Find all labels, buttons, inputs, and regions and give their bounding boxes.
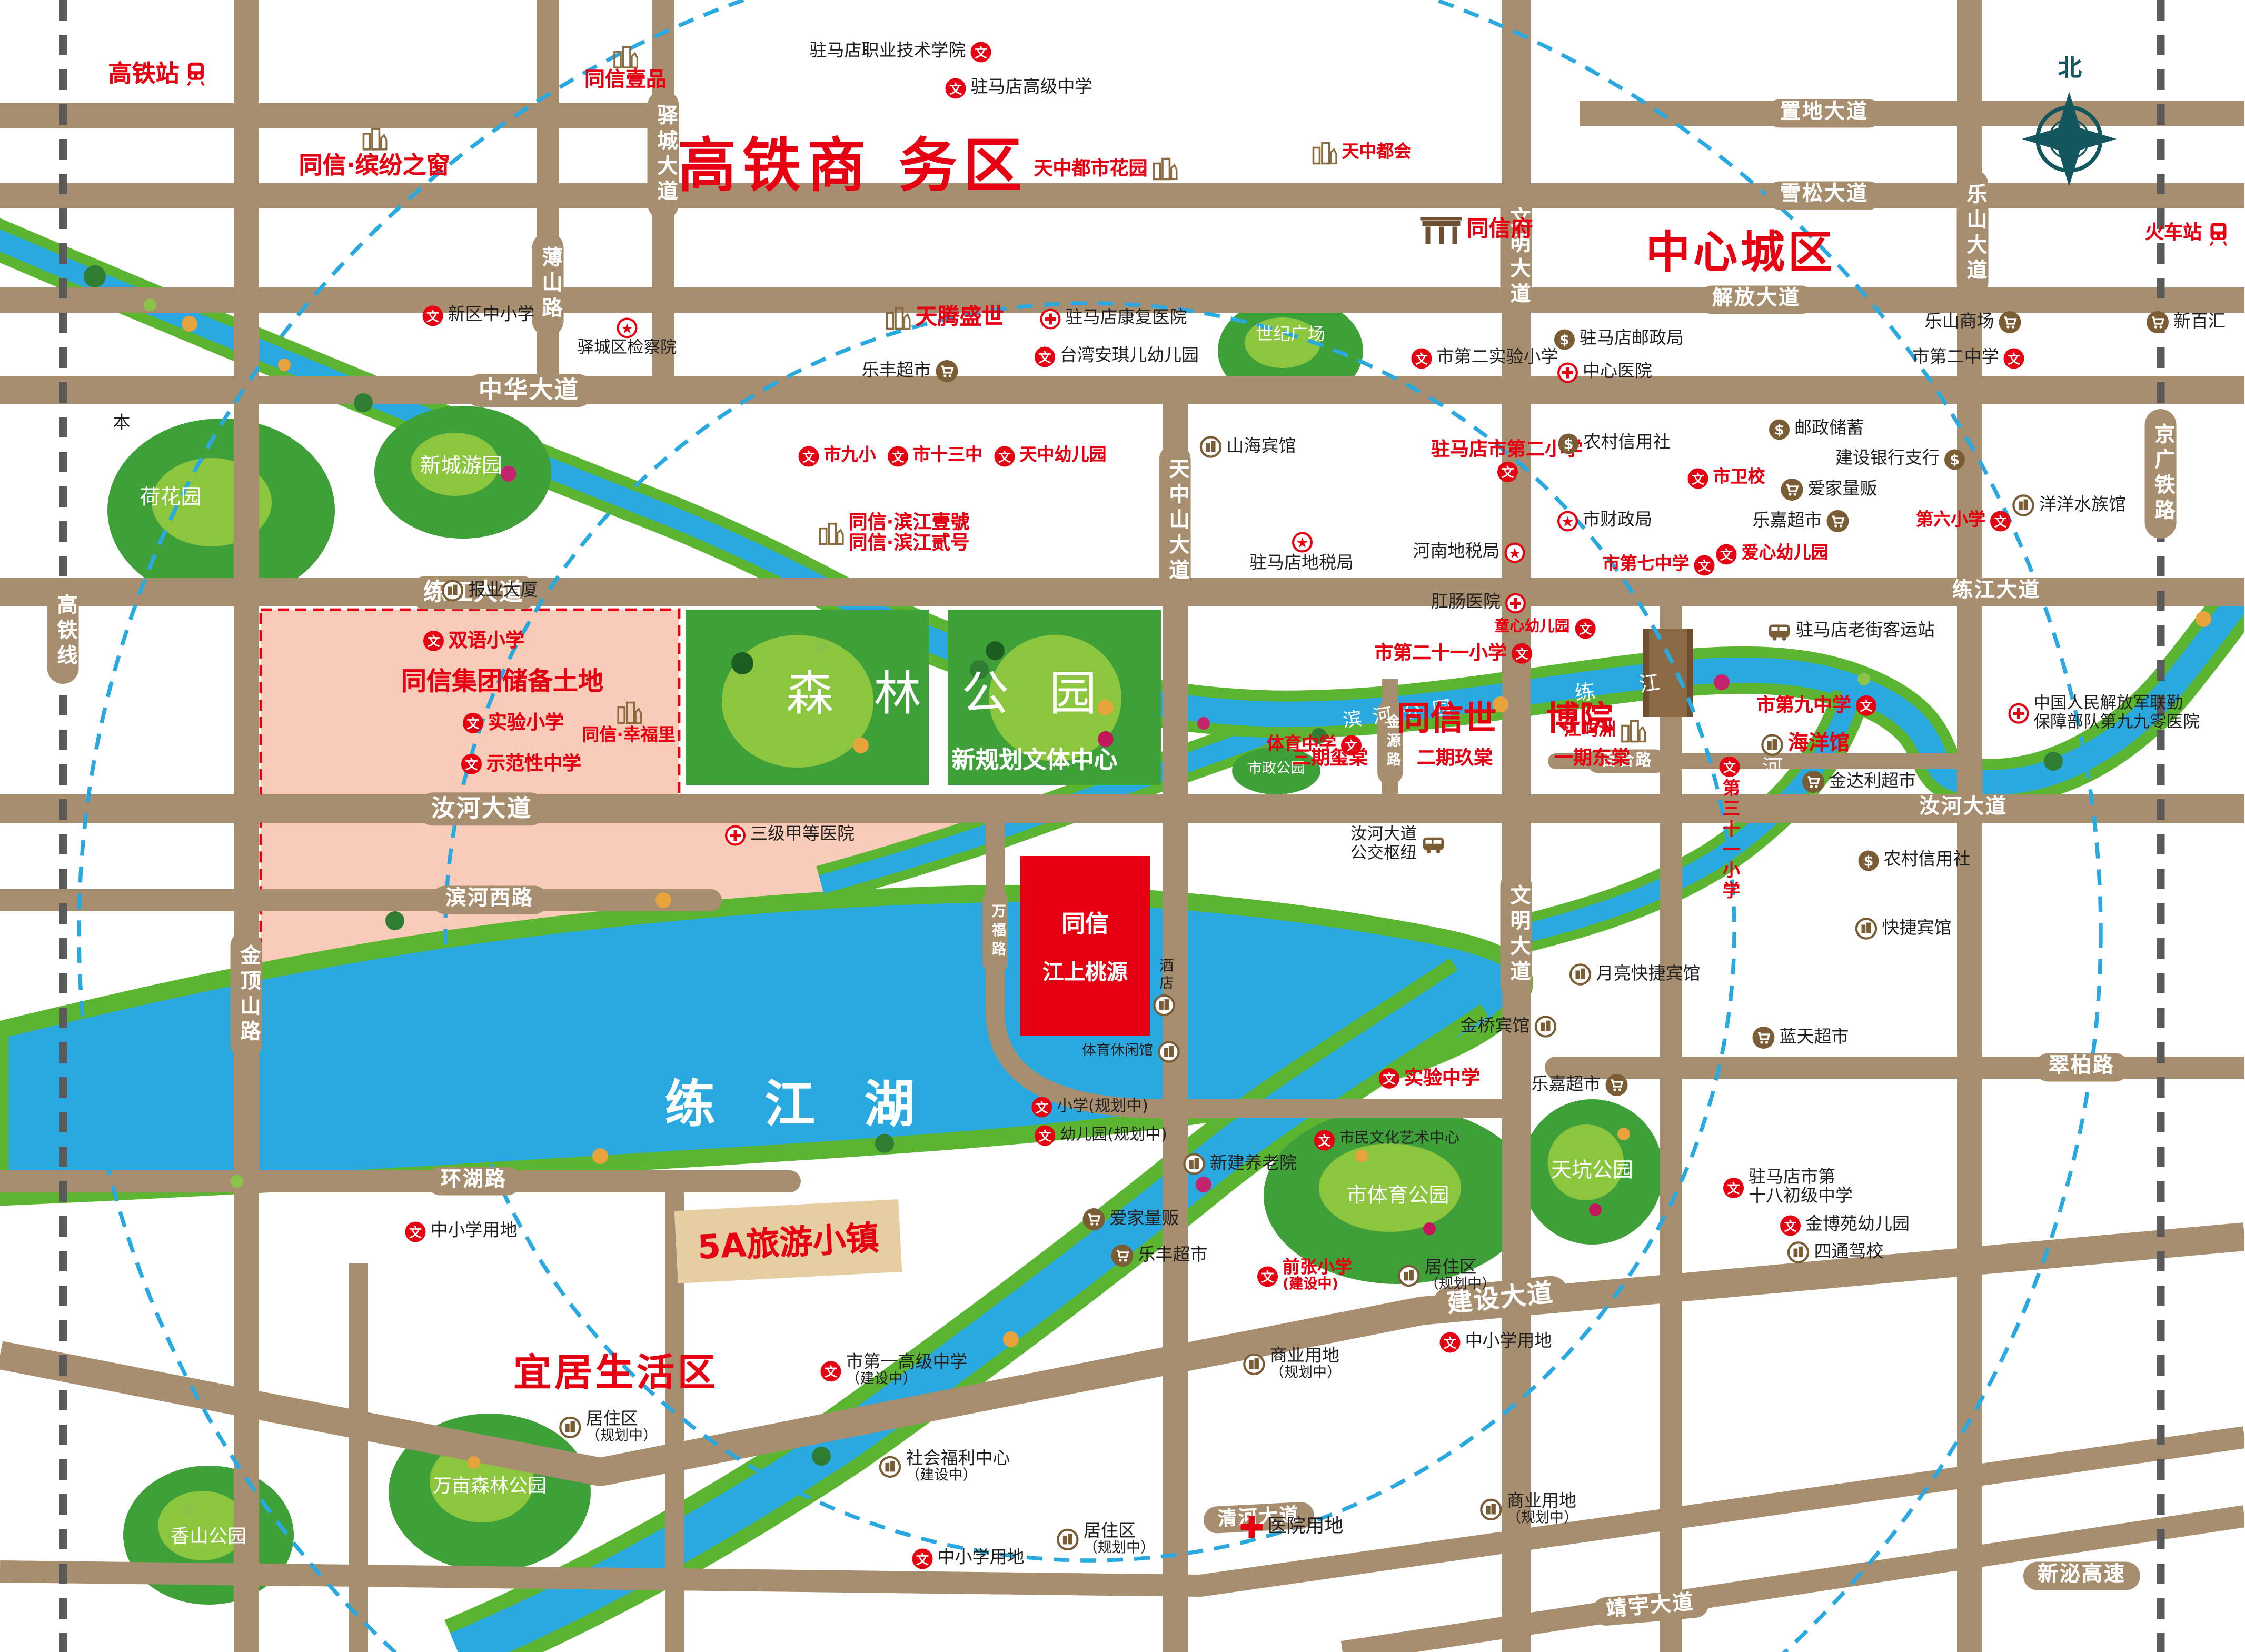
svg-text:文: 文	[426, 309, 440, 324]
hospital-icon	[1040, 309, 1061, 330]
svg-text:$: $	[1559, 332, 1569, 348]
poi-label: 天腾盛世	[916, 306, 1004, 331]
area-text: 新规划文体中心	[951, 749, 1117, 773]
bank-icon: $	[1769, 420, 1790, 440]
poi-label: 市民文化艺术中心	[1339, 1132, 1459, 1149]
poi-label: 天中幼儿园	[1020, 447, 1107, 466]
poi-label: 金桥宾馆	[1461, 1017, 1530, 1037]
poi-label: 前张小学(建设中)	[1283, 1258, 1352, 1293]
supermarket-icon	[1753, 1027, 1775, 1049]
poi: 市第九中学文	[1756, 695, 1876, 716]
poi: $驻马店邮政局	[1554, 330, 1684, 350]
poi: 乐山商场	[1925, 311, 2021, 333]
school-icon: 文	[1990, 511, 2011, 532]
area-text: 本	[113, 414, 131, 433]
tourism-town-label: 5A旅游小镇	[697, 1213, 880, 1270]
road-label: 金顶山路	[231, 930, 263, 1060]
poi: $农村信用社	[1558, 434, 1671, 454]
svg-text:文: 文	[802, 450, 816, 464]
poi: 体育休闲馆	[1082, 1041, 1180, 1063]
school-icon: 文	[1035, 1126, 1055, 1146]
poi-label: 幼儿园(规划中)	[1060, 1127, 1167, 1145]
poi-label: 双语小学	[449, 631, 524, 652]
poi-label: 天中都会	[1342, 144, 1412, 163]
hospital-icon	[1557, 363, 1578, 383]
tourism-town-block: 5A旅游小镇	[674, 1199, 902, 1283]
project-block-jiangshangtaoyuan: 同信 江上桃源	[1020, 856, 1150, 1036]
poi: 乐丰超市	[862, 360, 958, 382]
school-icon: 文	[1314, 1130, 1335, 1151]
poi: 文天中幼儿园	[995, 446, 1107, 467]
svg-text:文: 文	[1578, 622, 1592, 636]
supermarket-icon	[1802, 771, 1824, 793]
school-icon: 文	[888, 446, 908, 467]
poi-label: 农村信用社	[1884, 851, 1971, 871]
development-skyline-icon	[1621, 720, 1646, 743]
building-icon	[1057, 1529, 1079, 1551]
poi-label: 社会福利中心（建设中）	[906, 1449, 1010, 1485]
poi-label: 乐山商场	[1925, 313, 1994, 332]
svg-text:文: 文	[1784, 1219, 1797, 1233]
school-icon: 文	[912, 1549, 933, 1569]
poi-label: 驻马店职业技术学院	[810, 43, 966, 62]
poi: 文示范性中学	[461, 754, 581, 775]
poi: 中心医院	[1557, 363, 1652, 383]
svg-text:★: ★	[1561, 514, 1574, 530]
poi: $邮政储蓄	[1769, 420, 1864, 440]
school-icon: 文	[423, 631, 444, 652]
poi-label: 市第七中学	[1603, 556, 1690, 575]
bank-icon: $	[1558, 434, 1579, 454]
supermarket-icon	[1111, 1245, 1134, 1267]
bank-icon: $	[1944, 450, 1965, 470]
building-icon	[1787, 1241, 1810, 1263]
development-skyline-icon	[819, 522, 844, 546]
building-icon	[442, 580, 464, 602]
school-icon: 文	[971, 42, 991, 63]
svg-text:文: 文	[1036, 1100, 1049, 1115]
svg-text:文: 文	[466, 716, 480, 731]
building-icon	[1158, 1041, 1180, 1063]
school-icon: 文	[1440, 1332, 1461, 1353]
svg-text:文: 文	[427, 634, 440, 649]
poi: 同信·幸福里	[582, 701, 676, 746]
svg-text:文: 文	[409, 1225, 422, 1240]
school-icon: 文	[1257, 1266, 1278, 1287]
poi: 天中都会	[1312, 142, 1412, 165]
poi: 乐丰超市	[1111, 1245, 1208, 1267]
building-icon	[1243, 1354, 1265, 1376]
svg-text:文: 文	[1692, 472, 1705, 486]
supermarket-icon	[1827, 510, 1849, 532]
poi-label: 报业大厦	[469, 581, 538, 601]
poi-label: 中国人民解放军联勤保障部队第九九零医院	[2034, 695, 2200, 733]
poi-label: 邮政储蓄	[1794, 420, 1864, 440]
poi-label: 医院用地	[1267, 1517, 1343, 1538]
development-skyline-icon	[362, 127, 387, 151]
building-icon	[1480, 1499, 1502, 1521]
poi: 文前张小学(建设中)	[1257, 1258, 1352, 1293]
poi: 乐嘉超市	[1753, 510, 1849, 532]
poi-label: 爱家量贩	[1808, 480, 1878, 500]
svg-text:文: 文	[998, 450, 1011, 464]
poi-label: 中小学用地	[938, 1549, 1025, 1569]
school-icon: 文	[423, 306, 443, 326]
poi-label: 居住区（规划中）	[586, 1410, 657, 1445]
area-text: 高铁商 务区	[678, 137, 1028, 198]
svg-text:文: 文	[949, 82, 962, 96]
poi-label: 金达利超市	[1829, 772, 1916, 792]
building-icon	[879, 1456, 901, 1478]
poi-label: 新建养老院	[1210, 1155, 1297, 1174]
poi-label: 体育休闲馆	[1082, 1044, 1153, 1060]
poi: 四通驾校	[1787, 1241, 1884, 1263]
poi-label: 新区中小学	[448, 306, 535, 326]
development-skyline-icon	[1153, 157, 1178, 181]
poi: 居住区（规划中）	[1398, 1258, 1496, 1293]
poi-label: 示范性中学	[486, 754, 581, 775]
svg-text:文: 文	[1039, 1129, 1052, 1143]
building-icon	[2012, 494, 2034, 516]
school-icon: 文	[461, 754, 482, 775]
poi: 文市民文化艺术中心	[1314, 1130, 1459, 1151]
school-icon: 文	[1723, 1178, 1744, 1198]
hospital-icon	[2009, 704, 2029, 724]
school-icon: 文	[1031, 1097, 1052, 1118]
svg-text:★: ★	[1508, 545, 1521, 562]
bus-station-icon	[1767, 622, 1791, 642]
svg-text:文: 文	[1720, 548, 1733, 562]
bus-station-icon	[1422, 835, 1445, 855]
road-label: 解放大道	[1698, 286, 1815, 315]
poi-label: 商业用地（规划中）	[1270, 1347, 1341, 1382]
poi: 商业用地（规划中）	[1243, 1347, 1341, 1382]
development-skyline-icon	[886, 307, 911, 331]
poi: 驻马店职业技术学院文	[810, 42, 991, 63]
poi: 文中小学用地	[912, 1549, 1025, 1569]
school-icon: 文	[463, 713, 483, 734]
area-text: 同信集团储备土地	[401, 669, 603, 695]
poi: 文台湾安琪儿幼儿园	[1035, 347, 1199, 367]
poi-label: 同信府	[1467, 218, 1533, 243]
poi: 同信·滨江壹號同信·滨江贰号	[819, 513, 970, 555]
poi: 文市十三中	[888, 446, 982, 467]
svg-text:★: ★	[1295, 535, 1308, 551]
poi: 新百汇	[2147, 311, 2226, 333]
poi-label: 驿城区检察院	[578, 340, 677, 358]
poi-label: 驻马店市第十八初级中学	[1749, 1168, 1853, 1207]
road-label: 薄山路	[532, 232, 564, 336]
poi: 商业用地（规划中）	[1480, 1492, 1578, 1527]
poi: 金桥宾馆	[1461, 1016, 1557, 1038]
poi-label: 河南地税局	[1413, 543, 1500, 563]
poi: 河南地税局★	[1413, 543, 1525, 563]
area-text: 一期东棠	[1554, 748, 1630, 768]
poi: 文爱心幼儿园	[1716, 544, 1829, 565]
poi: 洋洋水族馆	[2012, 494, 2126, 516]
poi-label: 市第二十一小学	[1374, 643, 1507, 664]
building-icon	[1153, 994, 1175, 1017]
poi: 山海宾馆	[1200, 436, 1296, 458]
poi-label: 海洋馆	[1788, 734, 1850, 757]
poi-label: 酒店	[1156, 958, 1172, 993]
poi-label: 居住区（规划中）	[1084, 1522, 1155, 1557]
poi-label: 实验中学	[1404, 1068, 1480, 1089]
poi: 文市卫校	[1688, 469, 1765, 489]
building-icon	[559, 1417, 581, 1439]
poi: 市第二中学文	[1912, 349, 2024, 369]
poi: 市第七中学文	[1603, 555, 1715, 576]
school-icon: 文	[1574, 619, 1595, 639]
poi: 文实验中学	[1379, 1068, 1480, 1089]
project-name-line1: 同信	[1061, 907, 1109, 940]
poi-label: 童心幼儿园	[1495, 620, 1570, 637]
area-text: 新城游园	[420, 457, 502, 479]
poi-label: 乐嘉超市	[1532, 1076, 1601, 1095]
svg-text:文: 文	[916, 1552, 929, 1567]
bank-icon: $	[1554, 330, 1575, 350]
poi-label: 市卫校	[1713, 469, 1765, 489]
area-text: 森 林 公 园	[786, 670, 1109, 720]
rail-station-icon	[2207, 221, 2230, 246]
road-label: 新泌高速	[2023, 1562, 2140, 1591]
poi-label: 小学(规划中)	[1057, 1098, 1148, 1116]
poi-label: 驻马店高级中学	[971, 79, 1092, 98]
poi: 文金博苑幼儿园	[1780, 1216, 1910, 1236]
school-icon: 文	[1720, 757, 1740, 777]
poi: 社会福利中心（建设中）	[879, 1449, 1010, 1485]
svg-text:$: $	[1864, 853, 1874, 869]
supermarket-icon	[1083, 1208, 1105, 1230]
development-skyline-icon	[1312, 142, 1337, 165]
poi-label: 山海宾馆	[1227, 437, 1296, 457]
svg-text:文: 文	[892, 450, 905, 464]
building-icon	[1855, 918, 1878, 940]
road-label: 京广铁路	[2145, 409, 2177, 539]
svg-text:文: 文	[1723, 760, 1736, 775]
building-icon	[1183, 1153, 1205, 1175]
compass-north-label: 北	[2058, 57, 2082, 82]
map-canvas: 同信 江上桃源 5A旅游小镇 北 置地大道雪松大道解放大道中华大道练江大道练江大…	[0, 0, 2244, 1652]
svg-text:文: 文	[1860, 699, 1873, 714]
poi: ★驿城区检察院	[578, 317, 677, 358]
poi-label: 汝河大道公交枢纽	[1350, 827, 1417, 864]
area-text: 河	[1762, 759, 1782, 780]
poi-label: 居住区（规划中）	[1425, 1258, 1496, 1293]
road-label: 高铁线	[47, 580, 80, 684]
poi: 文幼儿园(规划中)	[1035, 1126, 1167, 1146]
poi-label: 乐丰超市	[1138, 1246, 1208, 1266]
road-label: 环湖路	[426, 1167, 521, 1196]
poi-label: 爱家量贩	[1110, 1210, 1179, 1229]
poi: 天腾盛世	[886, 306, 1004, 331]
government-star-icon: ★	[1292, 532, 1312, 553]
svg-text:文: 文	[1039, 350, 1052, 365]
area-text: 市体育公园	[1346, 1187, 1449, 1208]
poi: 文中小学用地	[405, 1222, 518, 1242]
svg-text:文: 文	[2008, 352, 2021, 366]
poi-label: 农村信用社	[1584, 434, 1671, 454]
poi-label: 同信·缤纷之窗	[299, 153, 450, 179]
poi: ★驻马店地税局	[1249, 532, 1354, 574]
school-icon: 文	[2004, 349, 2024, 369]
poi: 文双语小学	[423, 631, 524, 652]
area-text: 万亩森林公园	[433, 1476, 547, 1496]
bank-icon: $	[1859, 851, 1879, 871]
poi: 文第三十一小学	[1720, 757, 1740, 902]
poi: 建设银行支行$	[1835, 450, 1965, 470]
svg-text:文: 文	[1383, 1072, 1396, 1087]
road-label: 汝河大道	[1905, 794, 2022, 823]
poi: 同信府	[1421, 217, 1533, 244]
school-icon: 文	[821, 1361, 841, 1381]
poi-label: 市第一高级中学（建设中）	[846, 1353, 968, 1388]
school-icon: 文	[1780, 1216, 1801, 1236]
svg-text:文: 文	[825, 1364, 838, 1379]
svg-text:$: $	[1774, 422, 1784, 438]
poi-label: 市第九中学	[1756, 695, 1851, 716]
svg-text:文: 文	[1444, 1336, 1457, 1350]
area-text: 宜居生活区	[513, 1354, 719, 1394]
poi: 爱家量贩	[1781, 479, 1878, 501]
poi-label: 驻马店康复医院	[1066, 310, 1187, 329]
poi: 天中都市花园	[1034, 157, 1177, 181]
area-text: 天坑公园	[1551, 1161, 1633, 1183]
poi: 乐嘉超市	[1532, 1074, 1628, 1096]
supermarket-icon	[936, 360, 958, 382]
road-label: 置地大道	[1766, 99, 1883, 128]
government-star-icon: ★	[1505, 543, 1525, 563]
supermarket-icon	[2147, 311, 2169, 333]
poi: 同信壹品	[584, 45, 667, 94]
poi: 居住区（规划中）	[559, 1410, 657, 1445]
school-icon: 文	[405, 1222, 426, 1242]
svg-text:文: 文	[1698, 559, 1711, 573]
government-star-icon: ★	[1557, 511, 1578, 532]
poi-label: 同信·幸福里	[582, 727, 676, 746]
poi-label: 第三十一小学	[1720, 779, 1740, 902]
poi: 同信·缤纷之窗	[299, 127, 450, 179]
school-icon: 文	[995, 446, 1015, 467]
poi-label: 新百汇	[2173, 313, 2226, 332]
poi: 蓝天超市	[1753, 1027, 1849, 1049]
poi-label: 商业用地（规划中）	[1507, 1492, 1578, 1527]
svg-text:$: $	[1564, 436, 1574, 452]
svg-text:文: 文	[1261, 1269, 1275, 1284]
poi-label: 同信壹品	[584, 71, 667, 94]
poi: 市第二十一小学文	[1374, 643, 1532, 664]
road-label: 万福路	[982, 889, 1008, 974]
poi: 居住区（规划中）	[1057, 1522, 1155, 1557]
svg-text:文: 文	[465, 758, 478, 772]
poi-label: 同信·滨江壹號同信·滨江贰号	[849, 513, 970, 555]
poi: 爱家量贩	[1083, 1208, 1179, 1230]
area-text: 同信世	[1397, 701, 1497, 736]
poi-label: 市十三中	[913, 447, 982, 466]
building-icon	[1761, 734, 1783, 757]
poi-label: 爱心幼儿园	[1742, 545, 1829, 564]
poi-label: 市财政局	[1583, 512, 1652, 531]
poi: 文驻马店市第十八初级中学	[1723, 1168, 1853, 1207]
area-text: 中心城区	[1646, 230, 1835, 276]
poi-label: 实验小学	[488, 713, 564, 734]
road-label: 乐山大道	[1957, 169, 1989, 298]
development-skyline-icon	[616, 701, 641, 725]
poi-label: 月亮快捷宾馆	[1596, 965, 1701, 984]
svg-text:$: $	[1950, 452, 1960, 468]
poi-label: 台湾安琪儿幼儿园	[1060, 347, 1199, 367]
poi-label: 蓝天超市	[1780, 1028, 1849, 1048]
school-icon: 文	[1688, 469, 1708, 489]
poi: 火车站	[2145, 221, 2230, 246]
poi: 文市第一高级中学（建设中）	[821, 1353, 968, 1388]
poi-label: 驻马店邮政局	[1580, 330, 1684, 350]
building-icon	[1200, 436, 1222, 458]
poi: 第六小学文	[1916, 511, 2011, 532]
poi-label: 驻马店地税局	[1249, 554, 1354, 574]
building-icon	[1569, 963, 1592, 986]
school-icon: 文	[1412, 349, 1432, 369]
poi-label: 中小学用地	[431, 1222, 518, 1242]
poi: 三级甲等医院	[725, 825, 855, 846]
poi-label: 中心医院	[1583, 363, 1652, 383]
road-label: 文明大道	[1501, 870, 1533, 1000]
supermarket-icon	[1999, 311, 2021, 333]
road-label: 雪松大道	[1766, 182, 1883, 211]
area-text: 练 江 湖	[665, 1079, 931, 1132]
poi: 驻马店康复医院	[1040, 309, 1187, 330]
poi: 驻马店老街客运站	[1767, 622, 1935, 642]
svg-text:文: 文	[1318, 1133, 1331, 1148]
poi: 文驻马店高级中学	[946, 78, 1092, 99]
svg-text:文: 文	[1994, 514, 2008, 529]
svg-text:文: 文	[1727, 1181, 1741, 1196]
road-label: 中华大道	[464, 374, 594, 406]
poi-label: 快捷宾馆	[1882, 919, 1952, 939]
svg-text:★: ★	[621, 321, 633, 337]
poi: 酒店	[1153, 958, 1175, 1017]
poi: 童心幼儿园文	[1495, 619, 1595, 639]
poi-label: 驻马店老街客运站	[1796, 622, 1935, 642]
development-skyline-icon	[613, 45, 638, 69]
area-text: 三期玺棠	[1292, 748, 1368, 768]
road-label: 天中山大道	[1159, 444, 1191, 599]
school-icon: 文	[1379, 1069, 1399, 1089]
school-icon: 文	[1694, 555, 1715, 576]
hospital-icon	[725, 825, 746, 846]
gate-archway-icon	[1421, 217, 1462, 244]
area-text: 荷花园	[140, 489, 201, 510]
building-icon	[1535, 1016, 1557, 1038]
poi: 海洋馆	[1761, 734, 1850, 757]
poi-label: 四通驾校	[1814, 1243, 1884, 1262]
map-labels-layer: 同信 江上桃源 5A旅游小镇 北 置地大道雪松大道解放大道中华大道练江大道练江大…	[0, 0, 2244, 1652]
poi: 文新区中小学	[423, 306, 535, 326]
poi-label: 建设银行支行	[1835, 450, 1940, 470]
rail-station-icon	[184, 62, 208, 87]
poi: 汝河大道公交枢纽	[1350, 827, 1445, 864]
poi: 肛肠医院	[1431, 593, 1526, 614]
road-label: 驿城大道	[648, 90, 680, 220]
school-icon: 文	[1512, 644, 1532, 664]
area-text: 博院	[1546, 701, 1613, 736]
poi: 文市九小	[799, 446, 876, 467]
area-text: 世纪广场	[1256, 326, 1325, 344]
poi-label: 火车站	[2145, 223, 2202, 244]
poi-label: 市第二实验小学	[1437, 349, 1558, 369]
poi-label: 高铁站	[108, 61, 179, 87]
road-label: 汝河大道	[417, 792, 547, 825]
